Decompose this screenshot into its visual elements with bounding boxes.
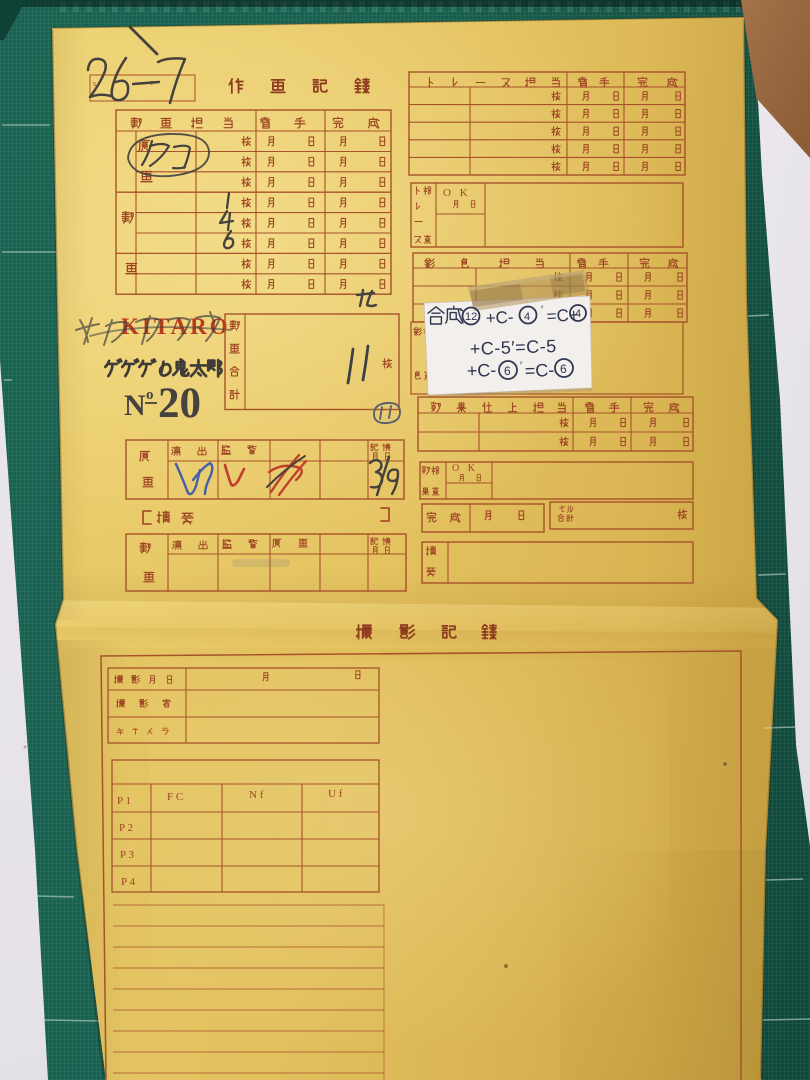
svg-text:+C-: +C- bbox=[485, 308, 514, 328]
svg-text:P 3: P 3 bbox=[120, 849, 134, 861]
svg-text:4: 4 bbox=[524, 311, 530, 323]
svg-text:F C: F C bbox=[167, 791, 183, 803]
svg-text:6: 6 bbox=[560, 362, 567, 376]
svg-text:6: 6 bbox=[504, 364, 511, 378]
svg-text:′: ′ bbox=[541, 304, 543, 316]
svg-text:O K: O K bbox=[452, 463, 478, 474]
svg-text:P 2: P 2 bbox=[119, 822, 133, 834]
svg-text:O K: O K bbox=[443, 187, 471, 199]
svg-text:+C-5′=C-5: +C-5′=C-5 bbox=[469, 336, 557, 359]
svg-text:12: 12 bbox=[465, 311, 477, 323]
svg-text:4: 4 bbox=[575, 308, 581, 320]
svg-text:N: N bbox=[124, 389, 146, 422]
svg-text:′: ′ bbox=[520, 360, 522, 372]
svg-text:20: 20 bbox=[158, 380, 201, 427]
svg-text:o: o bbox=[146, 387, 154, 403]
svg-text:=C-: =C- bbox=[524, 360, 554, 381]
svg-text:+C-: +C- bbox=[466, 360, 496, 381]
svg-text:P 1: P 1 bbox=[117, 795, 131, 807]
svg-text:N f: N f bbox=[249, 789, 264, 801]
svg-text:U f: U f bbox=[328, 788, 343, 800]
svg-text:P 4: P 4 bbox=[121, 876, 135, 888]
